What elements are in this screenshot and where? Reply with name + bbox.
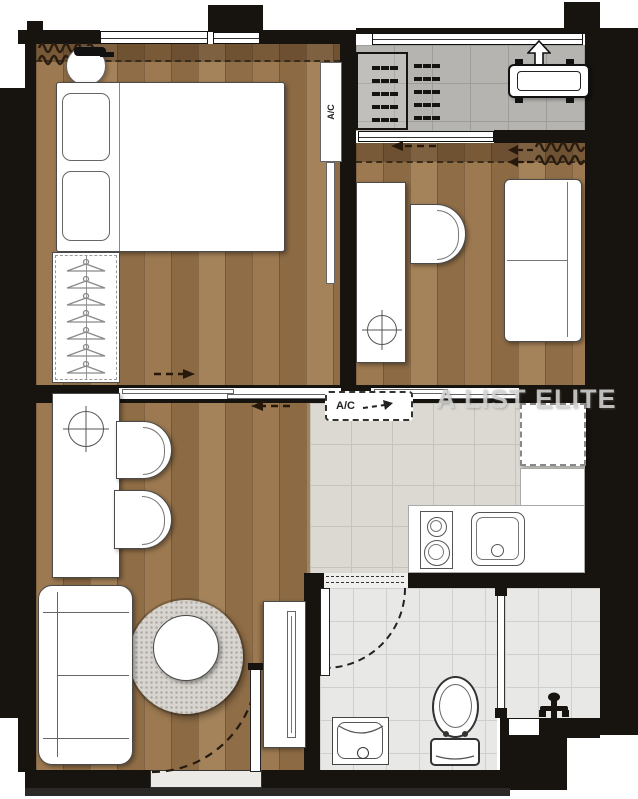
chair-seat-line [437,210,459,260]
condenser-vent [372,66,398,70]
toilet-bowl-inner [439,684,472,728]
curtain-icon [534,138,586,168]
slide-arrow-left-icon [388,140,438,152]
balcony-railing [372,33,583,45]
entrance-door-leaf [250,666,261,772]
condenser-vent [414,90,440,94]
wall-top-notch [27,21,43,32]
condenser-vent [372,118,398,122]
bedroom-window-2 [213,32,260,44]
toilet-tank [430,738,480,766]
sliding-panel [122,389,234,394]
chair-seat-line [143,427,165,475]
sliding-panel [227,394,340,399]
tv-screen-line [291,616,292,733]
wall-bathroom-left [304,575,320,790]
bed [56,82,285,252]
bathroom-vanity [332,717,389,765]
shower-mixer-icon [538,692,570,720]
toilet-bowl [432,676,479,738]
desk-clock-cross [362,310,402,350]
office-sofa [504,179,582,342]
wardrobe [52,252,120,383]
unit-foot [515,98,523,103]
watermark: A LIST ELITE [436,384,617,415]
ac-ceiling-unit-label: A/C [336,400,355,412]
wall-left-lower [18,718,36,772]
sofa-cushion-line [57,675,129,676]
bathroom-door-leaf [320,588,330,676]
condenser-vent [372,79,398,83]
wall-left-margin [0,88,36,718]
door-jamb [248,663,263,670]
sofa-armrest-line [43,738,129,739]
bedroom-window [100,31,208,44]
wall-right-margin-upper [585,28,638,588]
sofa-cushion-line [507,260,567,261]
condenser-vent [414,103,440,107]
condenser-vent [414,116,440,120]
door-opening-line [326,576,404,577]
burner [427,517,447,537]
desk [356,182,406,363]
sofa-armrest-line [43,612,129,613]
wall-lamp-arm [100,52,114,57]
wall-center-vertical [340,30,356,403]
toilet-hinge [443,731,449,737]
living-sofa [38,585,133,765]
ac-direction-arrow-icon [361,399,395,413]
partition-cap [495,708,507,718]
unit-foot [566,59,574,64]
shower-glass-partition [497,588,505,718]
ac-wall-unit: A/C [320,62,342,162]
wall-bottom [25,770,567,790]
bathroom-door-swing-arc [320,585,412,677]
shower-niche [509,719,539,735]
ac-pipe-chase [326,162,335,284]
slide-arrow-left-icon [506,157,534,167]
hangers-icon [57,258,115,378]
sink-drain [491,544,504,557]
unit-foot [566,98,574,103]
table-decor-cross [63,406,109,452]
basin-curve [337,724,385,740]
dining-chair [114,490,172,549]
burner-inner [428,544,444,560]
entrance-door-swing-arc [147,660,267,780]
kitchen-sink [471,512,525,566]
slide-arrow-left-icon [506,145,534,155]
wall-right-margin-lower [600,588,638,735]
stove [420,511,453,569]
condenser-vent [372,92,398,96]
door-opening-line [326,582,404,583]
burner-inner [430,520,442,532]
bed-sheet-line [119,83,120,251]
ac-condenser-unit [356,52,408,130]
pillow [62,93,110,161]
outdoor-unit-top [517,71,581,91]
ac-ceiling-unit: A/C [325,391,413,421]
chair-seat-line [142,496,165,545]
bottom-trim-strip [25,788,510,796]
vanity-faucet [357,747,369,759]
dining-chair [116,421,172,479]
column-top-center [208,5,263,32]
slide-arrow-right-icon [152,368,198,380]
outdoor-unit [508,64,590,98]
burner [424,540,450,566]
unit-foot [515,59,523,64]
sofa-backrest-line [567,182,568,337]
condenser-vent [372,105,398,109]
sliding-door-bedroom [118,387,342,400]
condenser-vent [414,64,440,68]
toilet-hinge [462,731,468,737]
dining-table [52,393,120,578]
condenser-vent [414,77,440,81]
ac-wall-unit-label: A/C [326,104,336,120]
slide-arrow-left-icon [248,400,292,412]
pillow [62,171,110,241]
tv-console [263,601,306,748]
tv [287,611,296,738]
tank-curve [432,740,478,764]
floor-plan: A/C [0,0,638,799]
condenser-vent-outer [414,64,440,129]
partition-cap [495,586,507,596]
